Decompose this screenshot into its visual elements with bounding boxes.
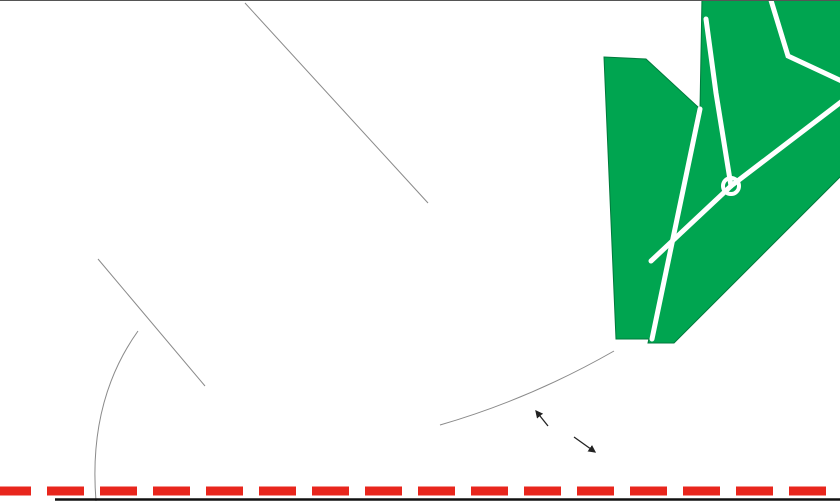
minor-street-lines	[95, 3, 614, 501]
city-map[interactable]: $	[0, 0, 840, 501]
park-and-streets-layer	[0, 1, 840, 501]
